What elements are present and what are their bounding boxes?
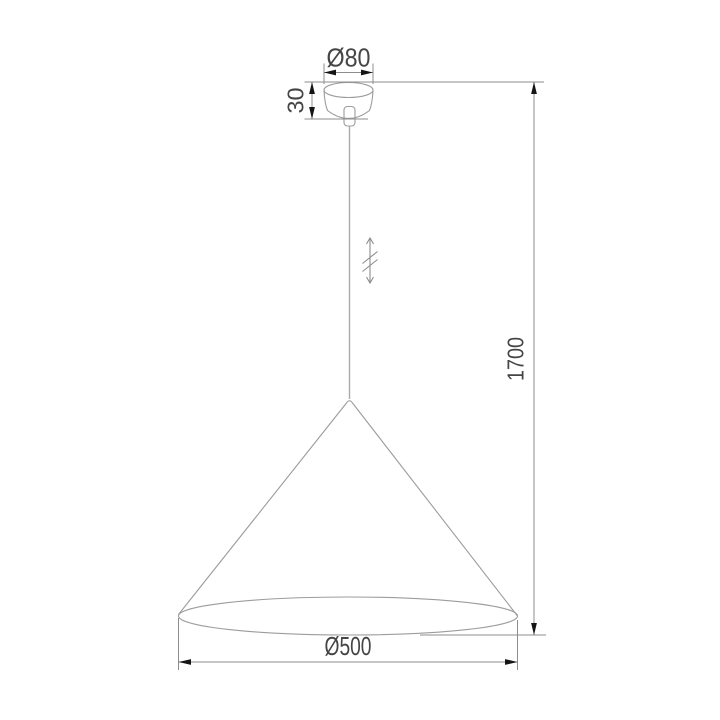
canopy-top-rim xyxy=(324,83,373,98)
arrowhead-up xyxy=(309,82,315,94)
pendant-lamp-dimension-drawing: Ø80 30 1700 Ø500 xyxy=(0,0,720,720)
canopy-height-label: 30 xyxy=(283,88,309,114)
cone-lampshade xyxy=(179,401,518,635)
dimension-overall-height: 1700 xyxy=(420,82,546,635)
dimension-canopy-height: 30 xyxy=(283,82,545,119)
cable-length-adjustment-icon xyxy=(363,238,378,283)
arrowhead-down xyxy=(309,107,315,119)
drawing-svg: Ø80 30 1700 Ø500 xyxy=(0,0,720,720)
cone-sides xyxy=(179,401,518,616)
shade-diameter-label: Ø500 xyxy=(325,631,372,661)
arrowhead-right xyxy=(505,659,518,665)
cone-bottom-rim xyxy=(179,597,518,635)
dimension-canopy-diameter: Ø80 xyxy=(324,43,373,85)
arrowhead-left xyxy=(179,659,192,665)
canopy-diameter-label: Ø80 xyxy=(327,43,371,73)
arrowhead-up xyxy=(531,82,537,94)
overall-height-label: 1700 xyxy=(503,337,529,381)
arrowhead-down xyxy=(531,623,537,635)
cable-grip xyxy=(344,107,355,127)
dimension-shade-diameter: Ø500 xyxy=(179,618,518,670)
